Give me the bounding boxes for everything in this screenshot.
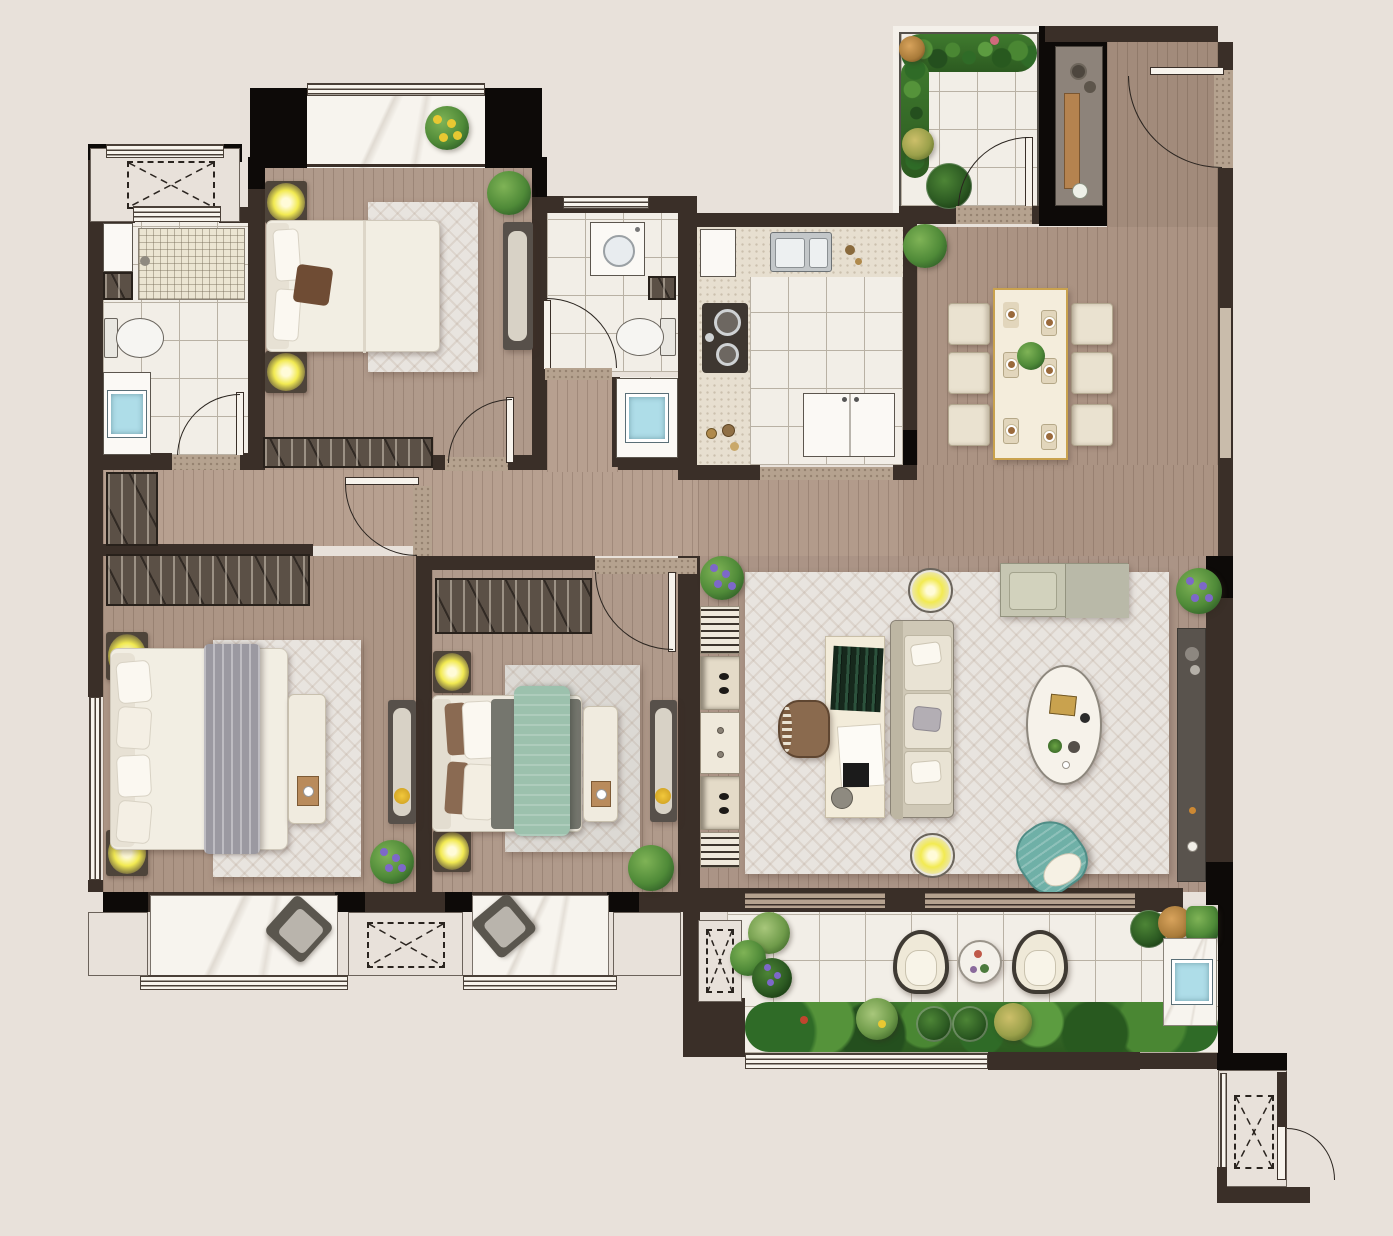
bench-cushion: [508, 231, 527, 341]
chair-back-ribs: [782, 706, 792, 752]
tray-dish: [596, 789, 607, 800]
shoe-cabinet: [106, 472, 158, 546]
wall: [893, 465, 917, 480]
flower-pot: [425, 106, 469, 150]
tray-dish: [303, 786, 314, 797]
chair-cushion: [905, 950, 937, 986]
bedroom-north-wardrobe: [263, 437, 433, 468]
pillow: [115, 660, 153, 705]
cooktop: [702, 303, 748, 373]
chaise-cushion: [1065, 564, 1129, 618]
washer-knob: [635, 227, 640, 232]
border-moss: [994, 1003, 1032, 1041]
spice-jar: [722, 424, 735, 437]
plate-center: [1008, 311, 1015, 318]
dining-chair: [948, 303, 990, 345]
potted-plant: [628, 845, 674, 891]
shower-head: [140, 256, 150, 266]
bay-side-box: [88, 912, 148, 976]
chair-cushion: [1024, 950, 1056, 986]
desk-lamp-base: [831, 787, 853, 809]
wall: [416, 556, 432, 892]
purple-flowers: [710, 564, 718, 572]
wall: [445, 892, 472, 912]
sofa-pillow: [910, 760, 942, 785]
shelf-books: [700, 832, 740, 868]
shower-area: [138, 228, 245, 300]
wall: [1217, 1053, 1287, 1070]
window-pier: [485, 88, 542, 168]
sofa: [890, 620, 954, 818]
spice-jar: [730, 442, 739, 451]
wall: [103, 892, 148, 912]
yellow-flower: [655, 788, 671, 804]
washing-machine: [590, 222, 645, 276]
knob: [719, 807, 729, 814]
wall: [1217, 1167, 1227, 1187]
lamp-glow: [435, 653, 469, 691]
storage-shelf: [700, 606, 740, 868]
basin: [626, 394, 668, 442]
bench-tray: [297, 776, 319, 806]
wall: [678, 196, 697, 465]
fridge-handle: [842, 397, 847, 402]
terrace-plant: [752, 958, 792, 998]
courtyard-hedge-left: [901, 60, 929, 178]
wall: [678, 556, 700, 892]
writing-desk: [825, 636, 885, 818]
yellow-flower: [394, 788, 410, 804]
bedroom-2-wardrobe: [435, 578, 592, 634]
purple-sprig: [764, 964, 771, 971]
spiky-plant: [902, 128, 934, 160]
pillow: [116, 706, 153, 750]
kitchen-sink: [770, 232, 832, 272]
decor-circle: [1080, 713, 1090, 723]
dining-chair: [1071, 352, 1113, 394]
tv-decor: [1185, 647, 1199, 661]
decor-bowl: [1068, 741, 1080, 753]
wall-daybench: [388, 700, 416, 824]
wall: [433, 455, 445, 470]
cooktop-knob: [705, 333, 714, 342]
basin: [108, 391, 146, 437]
shelf-drawers: [700, 712, 740, 774]
dining-chair: [948, 352, 990, 394]
pink-flower: [990, 36, 999, 45]
potted-plant: [370, 840, 414, 884]
plate-center: [1046, 433, 1053, 440]
sink-bowl: [775, 238, 805, 268]
purple-flowers: [380, 848, 388, 856]
gray-throw-blanket: [204, 644, 260, 854]
wall: [88, 472, 103, 697]
bay-sill: [140, 975, 348, 990]
red-flower: [800, 1016, 808, 1024]
bathroom-2-shelf: [648, 276, 676, 300]
dining-table: [993, 288, 1068, 460]
bench-tray: [591, 781, 611, 807]
cup: [1062, 761, 1070, 769]
wall: [678, 213, 917, 227]
shelf-cabinet: [700, 656, 740, 710]
topiary-tree: [916, 1006, 952, 1042]
wall: [607, 892, 639, 912]
moss-ball: [899, 36, 925, 62]
tv-decor: [1190, 665, 1200, 675]
yellow-flowers: [433, 115, 442, 124]
toilet: [616, 318, 664, 356]
table-decor: [970, 966, 977, 973]
threshold: [545, 368, 612, 380]
utility-door-swing: [1287, 1128, 1335, 1180]
lamp-glow: [435, 832, 469, 870]
wall: [335, 892, 365, 912]
nightstand-lamp: [265, 351, 307, 393]
balcony-slider-threshold: [745, 892, 885, 908]
floor-plan: [0, 0, 1393, 1236]
sofa-pillow: [910, 641, 943, 667]
knob: [717, 751, 724, 758]
bed-bench: [288, 694, 326, 824]
wall: [903, 430, 917, 465]
wall: [988, 1050, 1140, 1070]
ac-platform-south: [348, 912, 463, 976]
knob: [719, 673, 729, 680]
bay-side-box: [613, 912, 681, 976]
topiary-tree: [952, 1006, 988, 1042]
master-bed: [110, 648, 288, 850]
vase: [1072, 183, 1088, 199]
lamp-glow: [912, 572, 949, 609]
hall-kitchen-floor: [698, 480, 903, 556]
master-side-window: [89, 697, 101, 880]
console-wood-tray: [1064, 93, 1080, 189]
washer-drum: [603, 235, 635, 267]
window: [133, 206, 221, 222]
utility-door-leaf: [1277, 1126, 1286, 1180]
tv-console: [1177, 628, 1206, 882]
tv-decor: [1187, 841, 1198, 852]
sink-bowl: [809, 238, 828, 268]
balcony-slider-line: [307, 164, 485, 167]
ac-unit-marker: [127, 161, 215, 209]
potted-plant: [487, 171, 531, 215]
sofa-back: [891, 621, 903, 819]
wall: [248, 157, 265, 470]
dining-chair: [1071, 404, 1113, 446]
balcony-slider-threshold: [925, 892, 1135, 908]
dining-chair: [1071, 303, 1113, 345]
pillow: [116, 754, 152, 798]
yellow-flower: [878, 1020, 886, 1028]
wall: [683, 998, 745, 1057]
window-pier: [250, 88, 307, 168]
lamp-glow: [914, 837, 951, 874]
coffee-table: [1026, 665, 1102, 785]
floor-lamp: [910, 833, 955, 878]
master-wardrobe: [106, 554, 310, 606]
table-decor: [974, 950, 982, 958]
sofa-pillow: [912, 706, 942, 733]
kitchen-window-shelf: [700, 229, 736, 277]
kitchen-accessory: [845, 245, 855, 255]
office-chair: [778, 700, 830, 758]
border-fern: [856, 998, 898, 1040]
dining-floor-lower: [903, 465, 1218, 560]
bay-sill: [463, 975, 617, 990]
centerpiece-plant: [1017, 342, 1045, 370]
equipment-marker: [1234, 1095, 1274, 1169]
plate-center: [1046, 367, 1053, 374]
wall: [1217, 1187, 1310, 1203]
dining-chair: [948, 404, 990, 446]
double-bed: [266, 220, 440, 352]
refrigerator: [803, 393, 895, 457]
console-decor: [1084, 81, 1096, 93]
lamp-glow: [267, 183, 305, 222]
kitchen-accessory: [855, 258, 862, 265]
wall: [103, 453, 172, 470]
balcony-sill: [745, 1053, 988, 1069]
dining-corner-plant: [903, 224, 947, 268]
wall: [1218, 905, 1233, 1070]
threshold: [760, 467, 893, 480]
nightstand-lamp: [433, 651, 471, 693]
tv-decor: [1189, 807, 1196, 814]
burner: [716, 343, 739, 366]
bathroom-1-shelf: [103, 272, 133, 300]
knob: [717, 727, 724, 734]
green-quilt: [514, 686, 570, 836]
table-plant: [1048, 739, 1062, 753]
plate-center: [1008, 361, 1015, 368]
pillow: [115, 800, 153, 845]
fridge-divider: [849, 394, 851, 456]
entry-door-leaf: [1150, 67, 1224, 75]
chaise-daybed: [1000, 563, 1128, 617]
hedge-patch: [1186, 906, 1218, 942]
floor-lamp: [908, 568, 953, 613]
console-decor: [1070, 63, 1087, 80]
window: [563, 196, 649, 209]
green-books: [830, 646, 883, 713]
x-marker-lines: [369, 924, 443, 966]
wall: [1140, 1053, 1218, 1069]
potted-plant: [700, 556, 744, 600]
x-marker-lines: [1236, 1097, 1272, 1167]
toilet: [116, 318, 164, 358]
bed-bench: [583, 706, 618, 822]
shelf-books: [700, 606, 740, 654]
wall: [532, 157, 547, 197]
hall-center-floor: [432, 470, 698, 556]
nightstand-lamp: [433, 830, 471, 872]
tablet: [843, 763, 869, 787]
x-marker-lines: [129, 163, 213, 207]
threshold: [956, 206, 1032, 224]
throw-pillow: [293, 264, 334, 307]
knob: [719, 687, 729, 694]
side-table: [958, 940, 1002, 984]
duvet-fold: [363, 221, 366, 353]
wall: [1206, 862, 1233, 905]
shelf-cabinet: [700, 776, 740, 830]
burner: [714, 309, 741, 336]
wall: [88, 880, 103, 892]
plate-center: [1008, 427, 1015, 434]
bathroom-1-niche: [103, 223, 133, 272]
threshold: [172, 455, 240, 470]
table-decor: [980, 964, 989, 973]
hall-bath2-floor: [547, 377, 618, 472]
purple-flowers: [1186, 577, 1194, 585]
window-band: [307, 83, 485, 96]
wall: [1045, 26, 1218, 42]
outdoor-basin: [1172, 960, 1212, 1004]
wall: [1277, 1072, 1287, 1128]
chaise-pillow: [1009, 572, 1057, 610]
wall-bench: [503, 222, 533, 350]
plate-center: [1046, 319, 1053, 326]
lamp-glow: [267, 353, 305, 391]
window: [106, 144, 224, 158]
ac-unit-marker: [367, 922, 445, 968]
wall: [432, 556, 595, 570]
console-table: [1055, 46, 1103, 206]
spice-jar: [706, 428, 717, 439]
dining-window-inset: [1220, 308, 1231, 458]
wall-daybench: [650, 700, 677, 822]
gold-tray: [1049, 694, 1077, 717]
x-marker-lines: [708, 931, 732, 991]
fridge-handle: [854, 397, 859, 402]
knob: [719, 793, 729, 800]
nightstand-lamp: [265, 181, 307, 224]
potted-plant: [1176, 568, 1222, 614]
